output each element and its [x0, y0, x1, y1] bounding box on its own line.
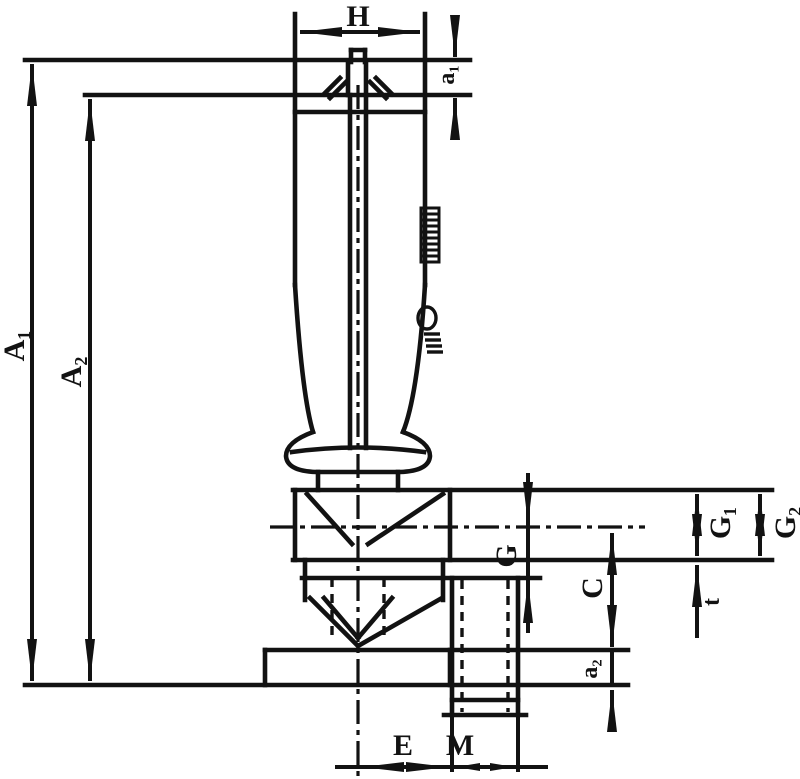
- dim-label-wall-offset: t: [700, 598, 724, 606]
- dim-label-outlet-thread: M: [446, 731, 474, 761]
- dim-label-port-depth-1: G₁: [706, 507, 736, 539]
- technical-drawing-canvas: H a₁ A₁ A₂ G C a₂ G₁ G₂ t E M: [0, 0, 800, 779]
- valve-body-outline: [25, 14, 772, 715]
- dim-label-cap-height: a₁: [435, 65, 459, 84]
- dim-label-center-to-base: C: [578, 577, 608, 599]
- dim-label-collar-height: A₂: [57, 357, 87, 388]
- dim-label-side-thread: G: [492, 544, 522, 567]
- dim-label-outlet-offset: E: [393, 731, 413, 761]
- dimension-lines: [32, 18, 760, 772]
- dim-label-base-thickness: a₂: [578, 659, 602, 678]
- valve-line-drawing: [0, 0, 800, 779]
- dim-label-handle-width: H: [346, 2, 369, 32]
- dim-label-port-depth-2: G₂: [771, 507, 800, 539]
- dim-label-total-height: A₁: [0, 331, 30, 362]
